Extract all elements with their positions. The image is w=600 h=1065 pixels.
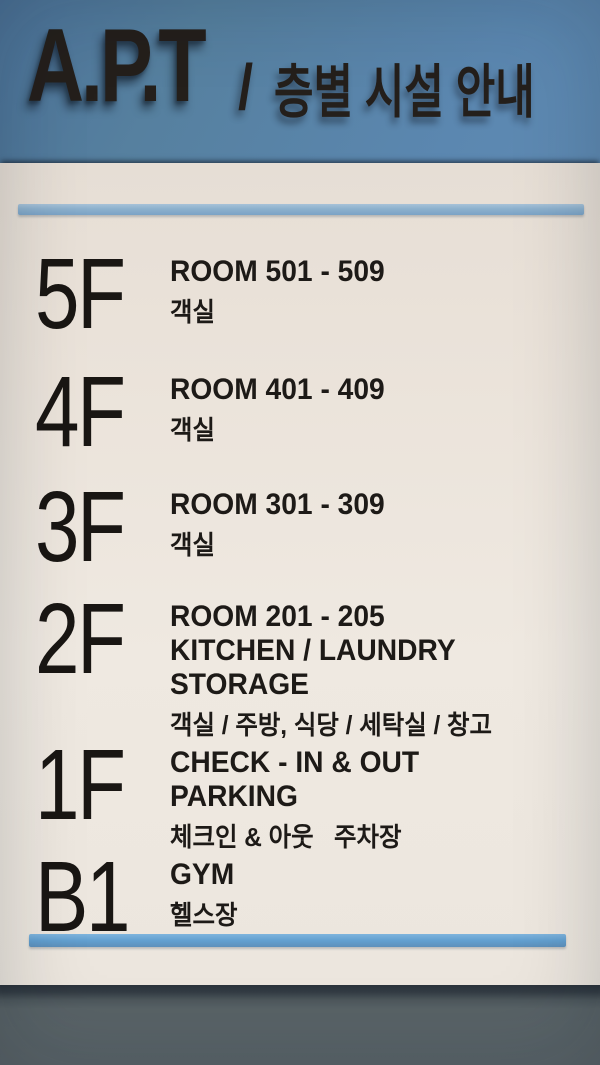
floor-label: 3F (35, 488, 143, 566)
floor-row: 2F ROOM 201 - 205KITCHEN / LAUNDRYSTORAG… (0, 600, 600, 741)
facility-line-ko: 체크인 & 아웃 주차장 (170, 821, 574, 853)
floor-facilities: ROOM 301 - 309객실 (170, 488, 574, 561)
floor-label: 2F (35, 600, 143, 678)
top-divider-bar (18, 204, 584, 215)
floor-facilities: CHECK - IN & OUTPARKING체크인 & 아웃 주차장 (170, 746, 574, 853)
facility-line-en: ROOM 501 - 509 (170, 255, 574, 289)
facility-line-en: PARKING (170, 780, 574, 814)
floor-facilities: GYM헬스장 (170, 858, 574, 931)
facility-line-ko: 객실 (170, 414, 574, 446)
floor-row: 3F ROOM 301 - 309객실 (0, 488, 600, 566)
floor-facilities: ROOM 201 - 205KITCHEN / LAUNDRYSTORAGE객실… (170, 600, 574, 741)
title-separator-slash: / (238, 55, 253, 119)
facility-line-en: ROOM 301 - 309 (170, 488, 574, 522)
floor-label: 5F (35, 255, 143, 333)
floor-label: 4F (35, 373, 143, 451)
bottom-divider-bar (29, 934, 566, 947)
floor-row: 5F ROOM 501 - 509객실 (0, 255, 600, 333)
facility-line-ko: 객실 (170, 296, 574, 328)
floor-row: B1 GYM헬스장 (0, 858, 600, 936)
lower-wall (0, 985, 600, 1065)
facility-line-en: ROOM 401 - 409 (170, 373, 574, 407)
facility-line-en: GYM (170, 858, 574, 892)
facility-line-en: ROOM 201 - 205 (170, 600, 574, 634)
facility-line-ko: 객실 (170, 529, 574, 561)
floor-facilities: ROOM 401 - 409객실 (170, 373, 574, 446)
directory-board: 5F ROOM 501 - 509객실 4F ROOM 401 - 409객실 … (0, 163, 600, 985)
photo-scene: A.P.T / 층별 시설 안내 5F ROOM 501 - 509객실 4F … (0, 0, 600, 1065)
facility-line-en: KITCHEN / LAUNDRY (170, 634, 574, 668)
floor-row: 4F ROOM 401 - 409객실 (0, 373, 600, 451)
building-name: A.P.T (27, 14, 204, 118)
facility-line-ko: 헬스장 (170, 899, 574, 931)
facility-line-en: STORAGE (170, 668, 574, 702)
floor-row: 1F CHECK - IN & OUTPARKING체크인 & 아웃 주차장 (0, 746, 600, 853)
sign-subtitle-korean: 층별 시설 안내 (274, 64, 535, 122)
floor-label: 1F (35, 746, 143, 824)
wall-sign-header: A.P.T / 층별 시설 안내 (0, 0, 600, 163)
facility-line-ko: 객실 / 주방, 식당 / 세탁실 / 창고 (170, 709, 574, 741)
floor-facilities: ROOM 501 - 509객실 (170, 255, 574, 328)
floor-rows: 5F ROOM 501 - 509객실 4F ROOM 401 - 409객실 … (0, 255, 600, 936)
facility-line-en: CHECK - IN & OUT (170, 746, 574, 780)
floor-label: B1 (35, 858, 143, 936)
